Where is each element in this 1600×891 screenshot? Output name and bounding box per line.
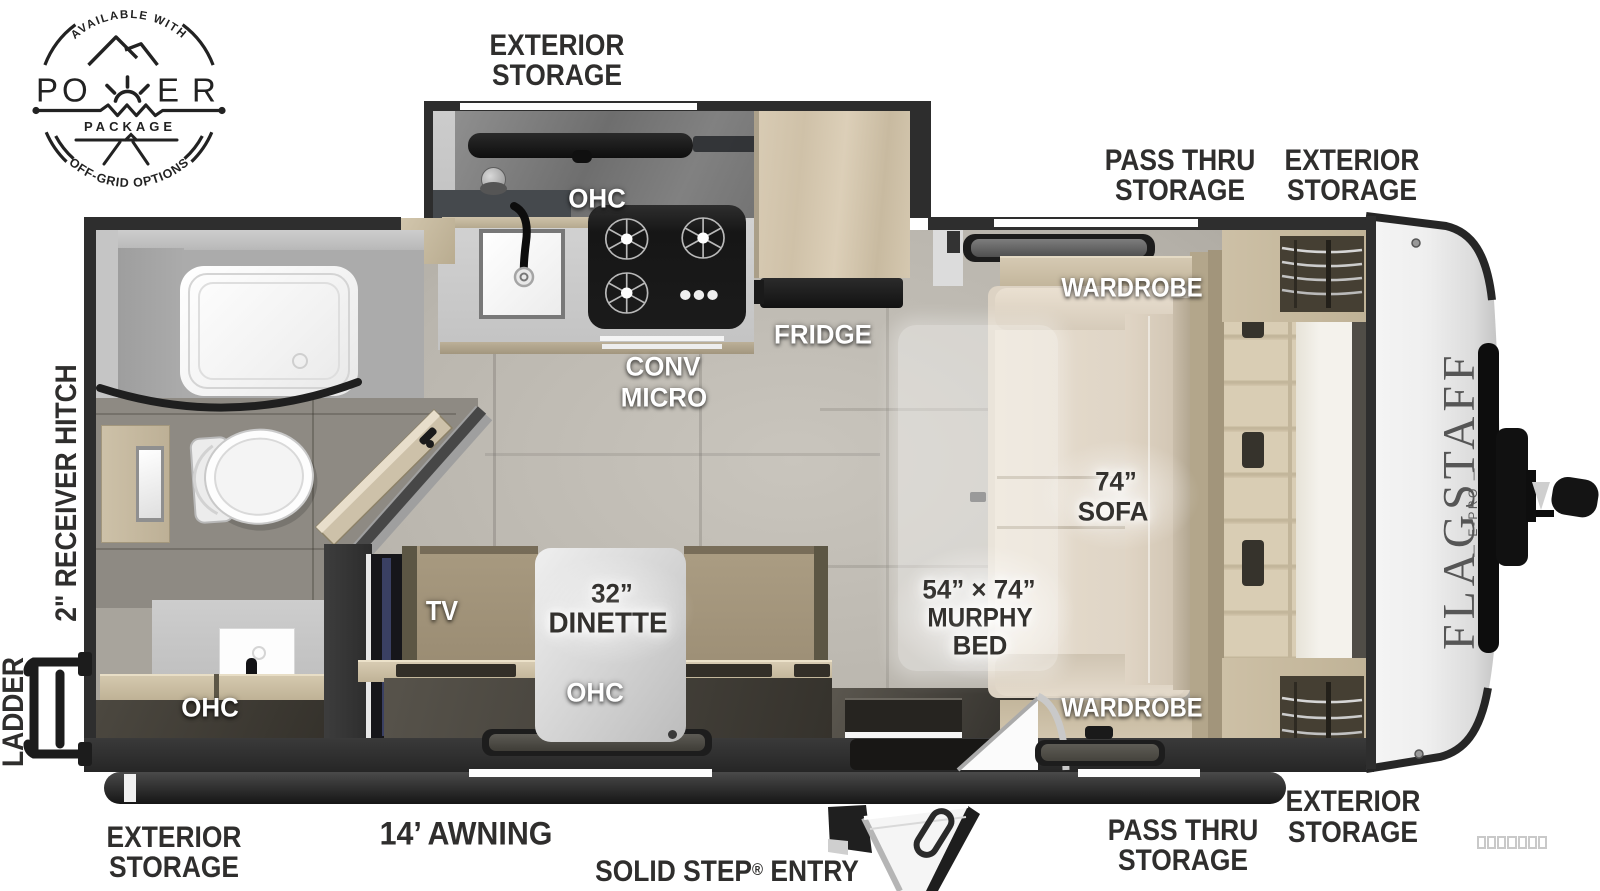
svg-text:PACKAGE: PACKAGE (84, 119, 176, 134)
svg-text:PO: PO (36, 72, 92, 109)
svg-text:— E-PRO —: — E-PRO — (1466, 466, 1480, 557)
svg-text:AVAILABLE WITH: AVAILABLE WITH (69, 9, 189, 42)
svg-text:R: R (192, 72, 216, 109)
svg-text:E: E (157, 72, 179, 109)
svg-text:OFF-GRID OPTIONS: OFF-GRID OPTIONS (66, 155, 191, 190)
